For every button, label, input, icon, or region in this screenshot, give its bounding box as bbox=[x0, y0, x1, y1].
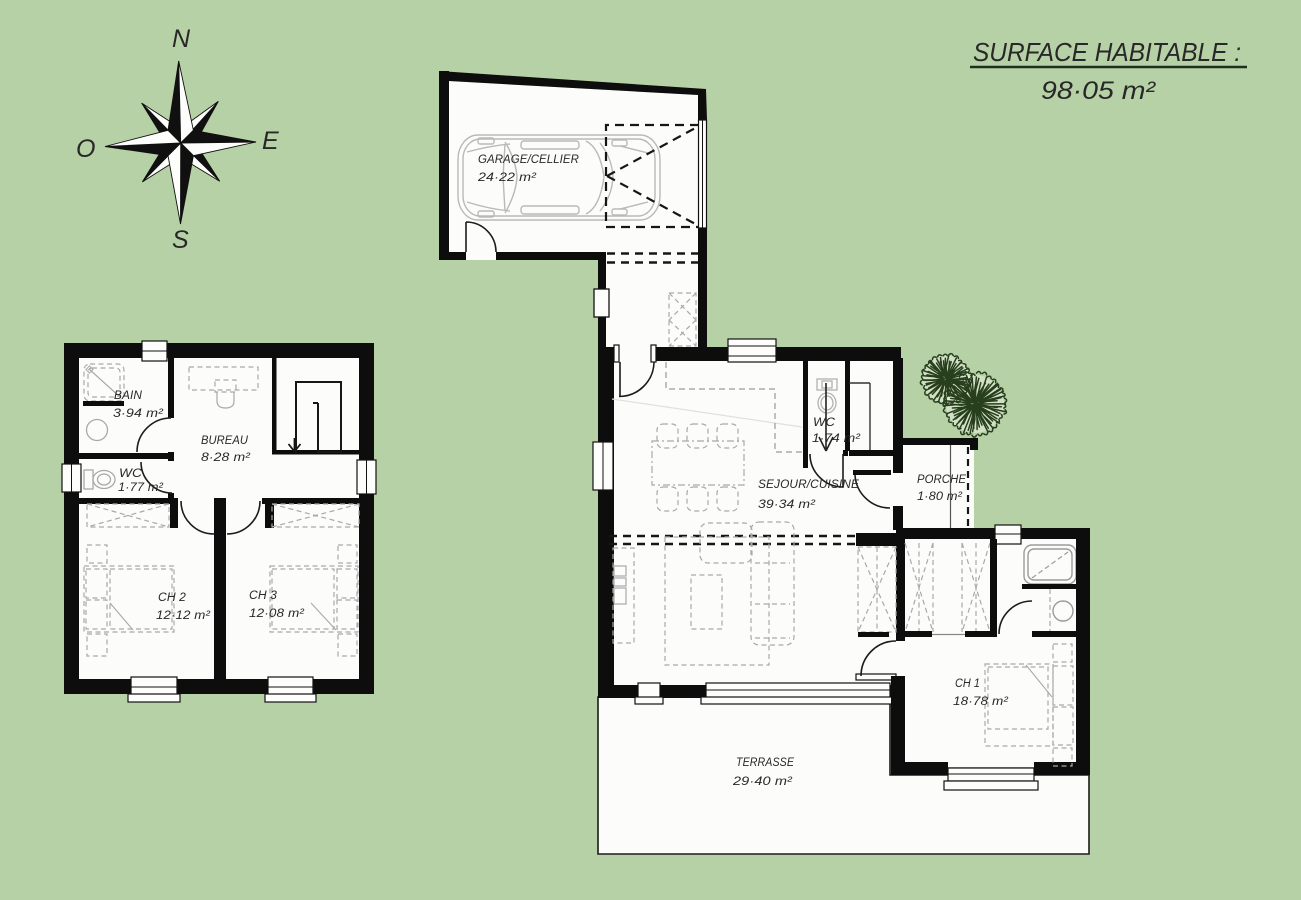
svg-text:E: E bbox=[262, 127, 279, 155]
svg-text:CH 3: CH 3 bbox=[249, 588, 277, 602]
svg-text:BUREAU: BUREAU bbox=[201, 433, 249, 447]
svg-text:98·05 m²: 98·05 m² bbox=[1041, 77, 1157, 105]
svg-text:N: N bbox=[172, 25, 191, 53]
svg-text:3·94 m²: 3·94 m² bbox=[113, 406, 164, 420]
svg-text:S: S bbox=[172, 226, 189, 254]
svg-text:GARAGE/CELLIER: GARAGE/CELLIER bbox=[478, 152, 579, 166]
svg-text:WC: WC bbox=[119, 466, 143, 480]
svg-text:TERRASSE: TERRASSE bbox=[736, 755, 795, 769]
svg-text:SURFACE HABITABLE :: SURFACE HABITABLE : bbox=[973, 37, 1241, 67]
svg-text:1·74 m²: 1·74 m² bbox=[812, 431, 861, 445]
svg-text:8·28 m²: 8·28 m² bbox=[201, 450, 251, 464]
svg-text:1·80 m²: 1·80 m² bbox=[917, 489, 963, 503]
svg-text:29·40 m²: 29·40 m² bbox=[732, 774, 793, 788]
svg-text:12·08 m²: 12·08 m² bbox=[249, 606, 305, 620]
svg-text:CH 1: CH 1 bbox=[955, 676, 980, 690]
svg-text:18·78 m²: 18·78 m² bbox=[953, 694, 1009, 708]
svg-text:O: O bbox=[76, 135, 95, 163]
svg-text:WC: WC bbox=[813, 415, 836, 429]
svg-text:CH 2: CH 2 bbox=[158, 590, 186, 604]
svg-text:PORCHE: PORCHE bbox=[917, 472, 967, 486]
svg-text:BAIN: BAIN bbox=[114, 388, 142, 402]
svg-text:12·12 m²: 12·12 m² bbox=[156, 608, 211, 622]
svg-text:24·22 m²: 24·22 m² bbox=[477, 170, 537, 184]
svg-text:39·34 m²: 39·34 m² bbox=[758, 497, 816, 511]
svg-text:1·77 m²: 1·77 m² bbox=[118, 480, 164, 494]
svg-text:SEJOUR/CUISINE: SEJOUR/CUISINE bbox=[758, 477, 860, 491]
